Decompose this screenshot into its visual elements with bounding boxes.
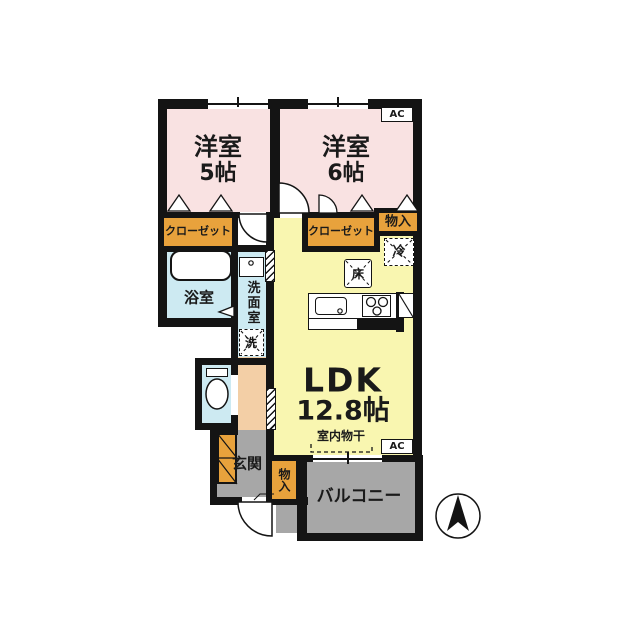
stove-burner — [367, 298, 376, 307]
stove-burner — [379, 298, 388, 307]
plan-symbols — [0, 0, 640, 640]
entrance-step-line — [254, 494, 274, 500]
door-room6 — [279, 183, 309, 213]
door-entrance — [238, 502, 272, 536]
room5-size-label: 5帖 — [199, 163, 236, 185]
door-bathroom-fold — [219, 306, 234, 317]
washroom-label: 洗面室 — [246, 281, 259, 326]
ldk-name-label: LDK — [303, 364, 383, 397]
folding-door-mark — [210, 195, 232, 211]
vanity-faucet — [249, 261, 253, 265]
ldk-size-label: 12.8帖 — [296, 398, 390, 425]
sink-drain — [338, 309, 342, 313]
indoor-drying-mark — [311, 444, 372, 452]
bathroom-label: 浴室 — [184, 291, 214, 306]
side-cabinet-diagonal — [399, 294, 413, 317]
north-arrow-icon — [436, 494, 480, 538]
room6-name-label: 洋室 — [322, 135, 370, 159]
indoor-drying-label: 室内物干 — [317, 430, 365, 442]
floor-storage-label: 床 — [352, 268, 364, 280]
toilet-bowl — [206, 379, 228, 409]
storage-top-label: 物入 — [385, 216, 411, 229]
room6-size-label: 6帖 — [327, 163, 364, 185]
ac-ldk-label: AC — [389, 442, 404, 452]
closet-right-label: クローゼット — [308, 226, 374, 237]
room5-name-label: 洋室 — [194, 135, 242, 159]
folding-door-mark — [351, 195, 373, 211]
entrance-label: 玄関 — [232, 457, 262, 472]
balcony-label: バルコニー — [317, 489, 402, 506]
closet-left-label: クローゼット — [165, 226, 231, 237]
door-closet-right — [319, 195, 337, 213]
floor-plan: 洋室 5帖 洋室 6帖 クローゼット クローゼット 物入 冷 床 浴室 洗面室 … — [0, 0, 640, 640]
folding-door-mark — [168, 195, 190, 211]
storage-bottom-label: 物入 — [278, 468, 290, 492]
stove-burner — [373, 307, 381, 315]
washer-label: 洗 — [245, 337, 257, 349]
folding-door-mark — [396, 195, 418, 211]
door-room5 — [239, 214, 267, 242]
ac-room6-label: AC — [389, 110, 404, 120]
fridge-label: 冷 — [392, 246, 405, 259]
